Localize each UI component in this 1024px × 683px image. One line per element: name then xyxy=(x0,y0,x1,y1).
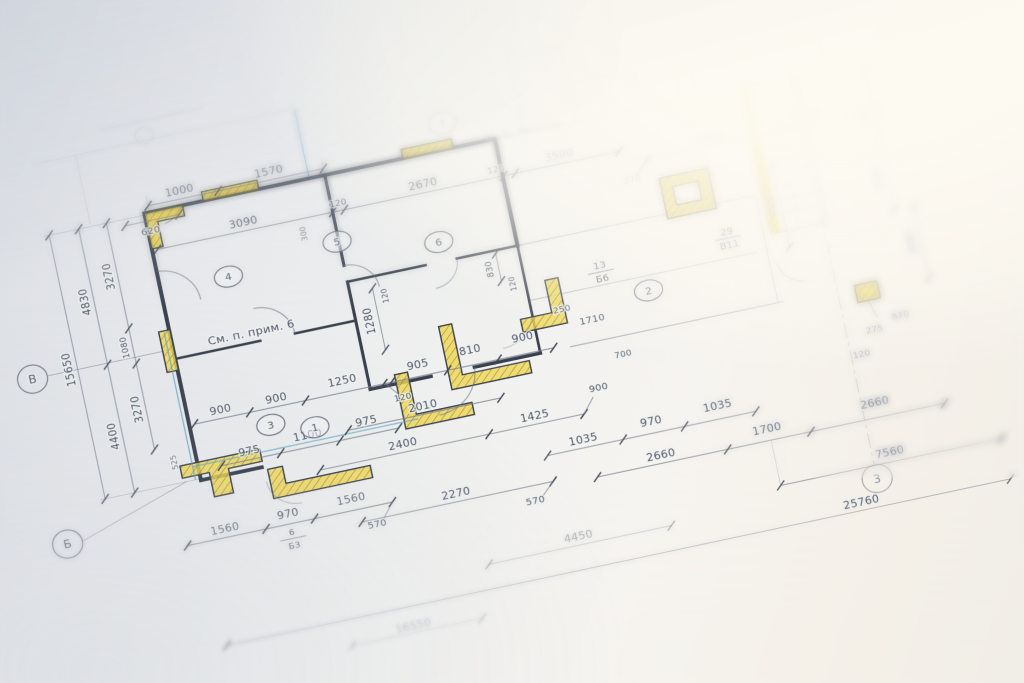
fraction-top: 6 xyxy=(288,528,296,539)
right-wing-walls xyxy=(518,194,784,353)
dim-1250: 1250 xyxy=(327,372,358,390)
dim-120-d: 120 xyxy=(507,275,519,292)
dim-1280: 1280 xyxy=(360,306,379,335)
dim-1560-b: 1560 xyxy=(335,490,366,508)
dim-7560: 7560 xyxy=(874,443,905,461)
dim-1080: 1080 xyxy=(118,336,133,360)
pipe-note: Труба 25х20 мм xyxy=(484,120,563,146)
walls-layer xyxy=(144,139,551,480)
dim-120-c: 120 xyxy=(379,287,391,304)
fraction-bottom: Б3 xyxy=(288,540,302,552)
blueprint-photo: 1000157062030901202670120350026801640270… xyxy=(0,0,1024,683)
dim-300: 300 xyxy=(298,225,310,242)
extension-lines xyxy=(40,80,781,625)
dim-1710: 1710 xyxy=(579,312,607,328)
floorplan-sheet: 1000157062030901202670120350026801640270… xyxy=(0,0,1024,683)
dim-275: 275 xyxy=(865,323,884,336)
floorplan-svg: 1000157062030901202670120350026801640270… xyxy=(0,0,1024,683)
dim-900-e: 900 xyxy=(857,104,872,124)
dim-810: 810 xyxy=(458,342,482,359)
dim-2660-b: 2660 xyxy=(859,394,890,412)
dim-1000-b: 1000 xyxy=(870,165,886,191)
fraction-bottom: В11 xyxy=(719,238,741,253)
dim-900-c: 900 xyxy=(510,329,534,346)
dim-970-b: 970 xyxy=(639,413,663,430)
dim-25760: 25760 xyxy=(842,492,880,512)
axis-label-Б: Б xyxy=(62,537,73,552)
dim-905: 905 xyxy=(406,356,430,373)
dim-870: 870 xyxy=(891,309,910,322)
dim-570-b: 570 xyxy=(525,494,546,508)
dim-1035-b: 1035 xyxy=(702,397,733,415)
dim-700: 700 xyxy=(614,348,633,361)
axis-label-3: 3 xyxy=(872,471,883,486)
dim-900-d: 900 xyxy=(588,381,609,395)
wall-right-upper xyxy=(495,139,518,246)
staircase xyxy=(740,75,829,234)
dim-570-a: 570 xyxy=(367,518,388,532)
dim-2000: 2000 xyxy=(903,230,919,256)
small-shaft xyxy=(854,281,880,303)
dim-1700: 1700 xyxy=(751,420,782,438)
dim-975-b: 975 xyxy=(354,413,378,430)
dim-900-b: 900 xyxy=(264,390,288,407)
dim-830: 830 xyxy=(484,260,498,278)
dim-970-a: 970 xyxy=(276,506,300,523)
dim-525: 525 xyxy=(168,454,180,471)
dim-120-f: 120 xyxy=(852,348,871,361)
axis-label-В: В xyxy=(27,372,38,387)
dim-270: 270 xyxy=(623,174,642,187)
dim-900-a: 900 xyxy=(208,402,232,419)
